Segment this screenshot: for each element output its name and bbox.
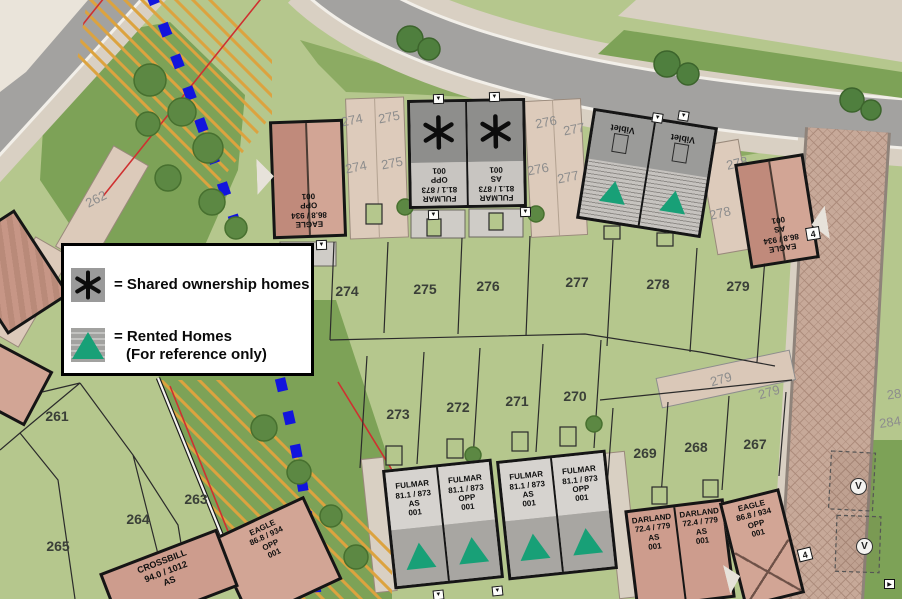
building-viblet-pair: Viblet Viblet [576, 108, 718, 238]
visitor-parking-marker: V [856, 538, 873, 555]
plot-number: 261 [45, 408, 68, 424]
house-label: DARLAND 72.4 / [0, 335, 1, 396]
plot-number: 269 [633, 445, 656, 461]
house-area: 86.8 / 934 [291, 209, 327, 220]
down-arrow-icon: ▼ [430, 212, 436, 218]
plot-number: 267 [743, 436, 766, 452]
building-fulmar-pair-top: FULMAR 81.1 / 873 OPP 001 FULMAR 81.1 / … [407, 98, 527, 209]
driveway-arrow-marker: ▼ [677, 110, 689, 122]
rented-home-triangle-icon [505, 516, 562, 577]
driveway-arrow-marker: ▼ [651, 112, 663, 124]
house-label: FULMAR 81.1 / 873 OPP 001 [447, 473, 486, 514]
rented-home-triangle-icon [579, 159, 646, 226]
legend-rented-note: (For reference only) [114, 346, 267, 364]
right-arrow-icon: ▶ [887, 581, 892, 588]
house-label: FULMAR 81.1 / 873 AS 001 [394, 478, 433, 519]
house-unit-fulmar: FULMAR 81.1 / 873 AS 001 [465, 101, 524, 205]
driveway-arrow-marker: ▼ [520, 207, 531, 217]
driveway-arrow-marker: ▼ [316, 240, 327, 250]
house-label: FULMAR 81.1 / 873 AS 001 [508, 469, 547, 510]
plot-number-edge: 28 [886, 386, 902, 403]
house-label: EAGLE 86.8 / 934 OPP 001 [722, 492, 786, 545]
plot-number: 273 [386, 406, 409, 422]
site-plan-map: EAGLE 86.8 / 934 OPP 001 FULMAR 81.1 / 8… [0, 0, 902, 599]
legend-row-rented: = Rented Homes (For reference only) [71, 328, 267, 364]
plot-number: 277 [565, 274, 588, 290]
legend-shared-label: = Shared ownership homes [114, 276, 309, 294]
plot-number: 264 [126, 511, 149, 527]
plot-number-edge: 284 [878, 413, 902, 431]
legend-row-shared: = Shared ownership homes [71, 268, 309, 302]
down-arrow-icon: ▼ [654, 115, 661, 122]
driveway-arrow-marker: ▼ [428, 210, 439, 220]
house-label: FULMAR 81.1 / 873 OPP 001 [561, 464, 600, 505]
plot-number: 275 [413, 281, 436, 297]
driveway-arrow-marker: ▶ [884, 579, 895, 589]
plot-number: 268 [684, 439, 707, 455]
plot-number: 272 [446, 399, 469, 415]
house-unit: 001 [291, 191, 327, 202]
driveway-arrow-marker: ▼ [433, 94, 444, 104]
house-unit-fulmar: FULMAR 81.1 / 873 OPP 001 [436, 462, 501, 581]
visitor-parking-marker: V [850, 478, 867, 495]
plot-number: 279 [726, 278, 749, 294]
house-label: Viblet [607, 122, 636, 157]
down-arrow-icon: ▼ [522, 209, 528, 215]
house-label: Viblet [667, 132, 696, 167]
plot-number: 263 [184, 491, 207, 507]
building-fulmar-pair-bottom-2: FULMAR 81.1 / 873 AS 001 FULMAR 81.1 / 8… [496, 450, 618, 581]
down-arrow-icon: ▼ [435, 96, 441, 102]
plot-number: 276 [476, 278, 499, 294]
plot-number: 270 [563, 388, 586, 404]
down-arrow-icon: ▼ [318, 242, 324, 248]
driveway-arrow-marker: ▼ [489, 92, 500, 102]
plot-number: 274 [335, 283, 358, 299]
building-fulmar-pair-bottom-1: FULMAR 81.1 / 873 AS 001 FULMAR 81.1 / 8… [382, 459, 504, 590]
rented-home-triangle-icon [640, 168, 707, 235]
shared-ownership-asterisk-icon [71, 268, 105, 302]
down-arrow-icon: ▼ [494, 588, 501, 595]
rented-home-triangle-icon [558, 511, 615, 572]
shared-ownership-asterisk-icon [410, 102, 466, 163]
label-box [612, 133, 630, 154]
driveway-arrow-marker: ▼ [492, 585, 504, 596]
building-darland-pair: DARLAND 72.4 / 779 AS 001 DARLAND 72.4 /… [624, 498, 735, 599]
roof-hip-lines [734, 539, 801, 599]
shared-ownership-asterisk-icon [467, 101, 523, 162]
down-arrow-icon: ▼ [680, 113, 687, 120]
legend: = Shared ownership homes = Rented Homes … [61, 243, 314, 376]
plot-number: 265 [46, 538, 69, 554]
house-number-plate: 4 [805, 226, 821, 241]
down-arrow-icon: ▼ [435, 592, 442, 599]
rented-home-triangle-icon [71, 328, 105, 362]
house-label: DARLAND 72.4 / 779 AS 001 [628, 507, 679, 554]
house-label: FULMAR 81.1 / 873 OPP 001 [421, 165, 457, 203]
house-label: EAGLE 86.8 / 934 AS 001 [760, 212, 801, 255]
house-label: FULMAR 81.1 / 873 AS 001 [478, 164, 514, 202]
house-label: EAGLE 86.8 / 934 OPP 001 [291, 191, 328, 230]
legend-rented-label: = Rented Homes [114, 328, 267, 346]
plot-number: 271 [505, 393, 528, 409]
down-arrow-icon: ▼ [491, 94, 497, 100]
rented-home-triangle-icon [444, 520, 501, 581]
driveway-arrow-marker: ▼ [433, 589, 445, 599]
house-type: EAGLE [292, 219, 328, 230]
house-unit-fulmar: FULMAR 81.1 / 873 OPP 001 [410, 102, 467, 206]
building-eagle-top-left: EAGLE 86.8 / 934 OPP 001 [269, 119, 347, 240]
house-label: DARLAND 72.4 / 779 AS 001 [675, 502, 726, 549]
plot-number: 278 [646, 276, 669, 292]
rented-home-triangle-icon [391, 525, 448, 586]
label-box [672, 143, 690, 164]
house-unit-fulmar: FULMAR 81.1 / 873 OPP 001 [550, 453, 615, 572]
